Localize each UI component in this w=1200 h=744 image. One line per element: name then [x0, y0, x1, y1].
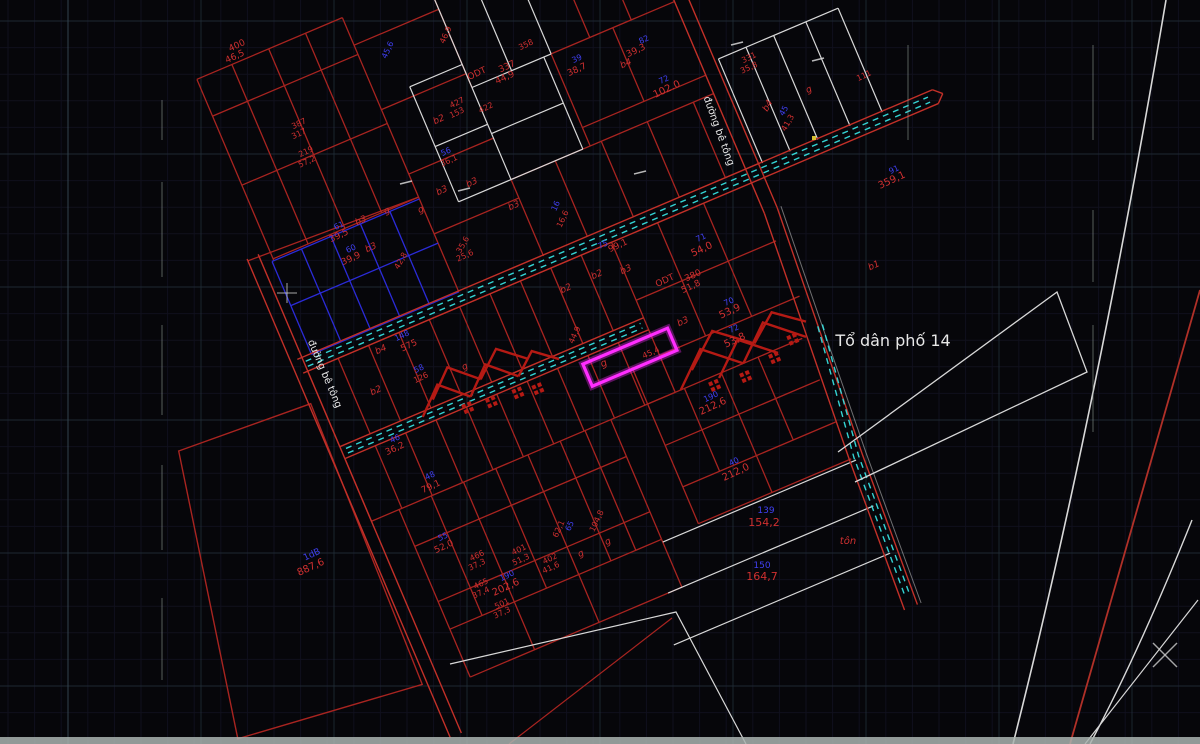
parcel-label: ODT [466, 65, 488, 83]
parcel-label: 111 [855, 68, 873, 83]
parcel-label: tôn [840, 535, 856, 547]
parcel-label: 44,9 [567, 325, 583, 345]
parcel-label: b4 [374, 343, 389, 357]
parcel-label: 164,7 [746, 570, 778, 583]
parcel-label: b2 [369, 384, 384, 398]
east-parcel-band [838, 292, 1087, 482]
cad-map-viewport[interactable]: 40046,538731721957,245,646,9427153422b25… [0, 0, 1200, 744]
parcel-label: 53,9 [718, 302, 743, 321]
parcel-label: b4 [619, 57, 634, 71]
parcel-label: b3 [435, 184, 450, 198]
parcel-label: 54,0 [690, 240, 715, 259]
parcel-label: 99,1 [607, 237, 629, 255]
area-annotation-label: Tổ dân phố 14 [834, 331, 950, 350]
parcel-label: 39,9 [340, 250, 363, 268]
background-grid [0, 0, 1200, 744]
parcel-label: 422 [477, 100, 495, 115]
parcel-label: b2 [590, 268, 605, 282]
cadastral-map-canvas[interactable]: 40046,538731721957,245,646,9427153422b25… [0, 0, 1200, 744]
parcel-label: 139 [757, 506, 774, 516]
parcel-label: 16 [550, 199, 562, 212]
parcel-label: b3 [364, 241, 379, 255]
parcel-label: 46,9 [438, 25, 454, 45]
parcel-label: 36,2 [384, 440, 406, 458]
parcel-label: 65 [564, 519, 576, 532]
boundary-arc-red [1070, 290, 1200, 744]
parcel-label: 38,7 [566, 61, 588, 79]
parcel-label: b3 [507, 199, 522, 213]
parcel-label: 358 [517, 37, 535, 52]
parcel-label: b2 [559, 282, 574, 296]
parcel-label: b1 [867, 259, 882, 273]
parcel-label: 45,6 [380, 40, 396, 60]
parcel-label: b3 [676, 315, 691, 329]
vertex-marker [812, 136, 816, 140]
parcel-label: 154,2 [748, 516, 780, 529]
parcel-label: g [576, 548, 586, 560]
bottom-edge-strip [0, 737, 1200, 744]
